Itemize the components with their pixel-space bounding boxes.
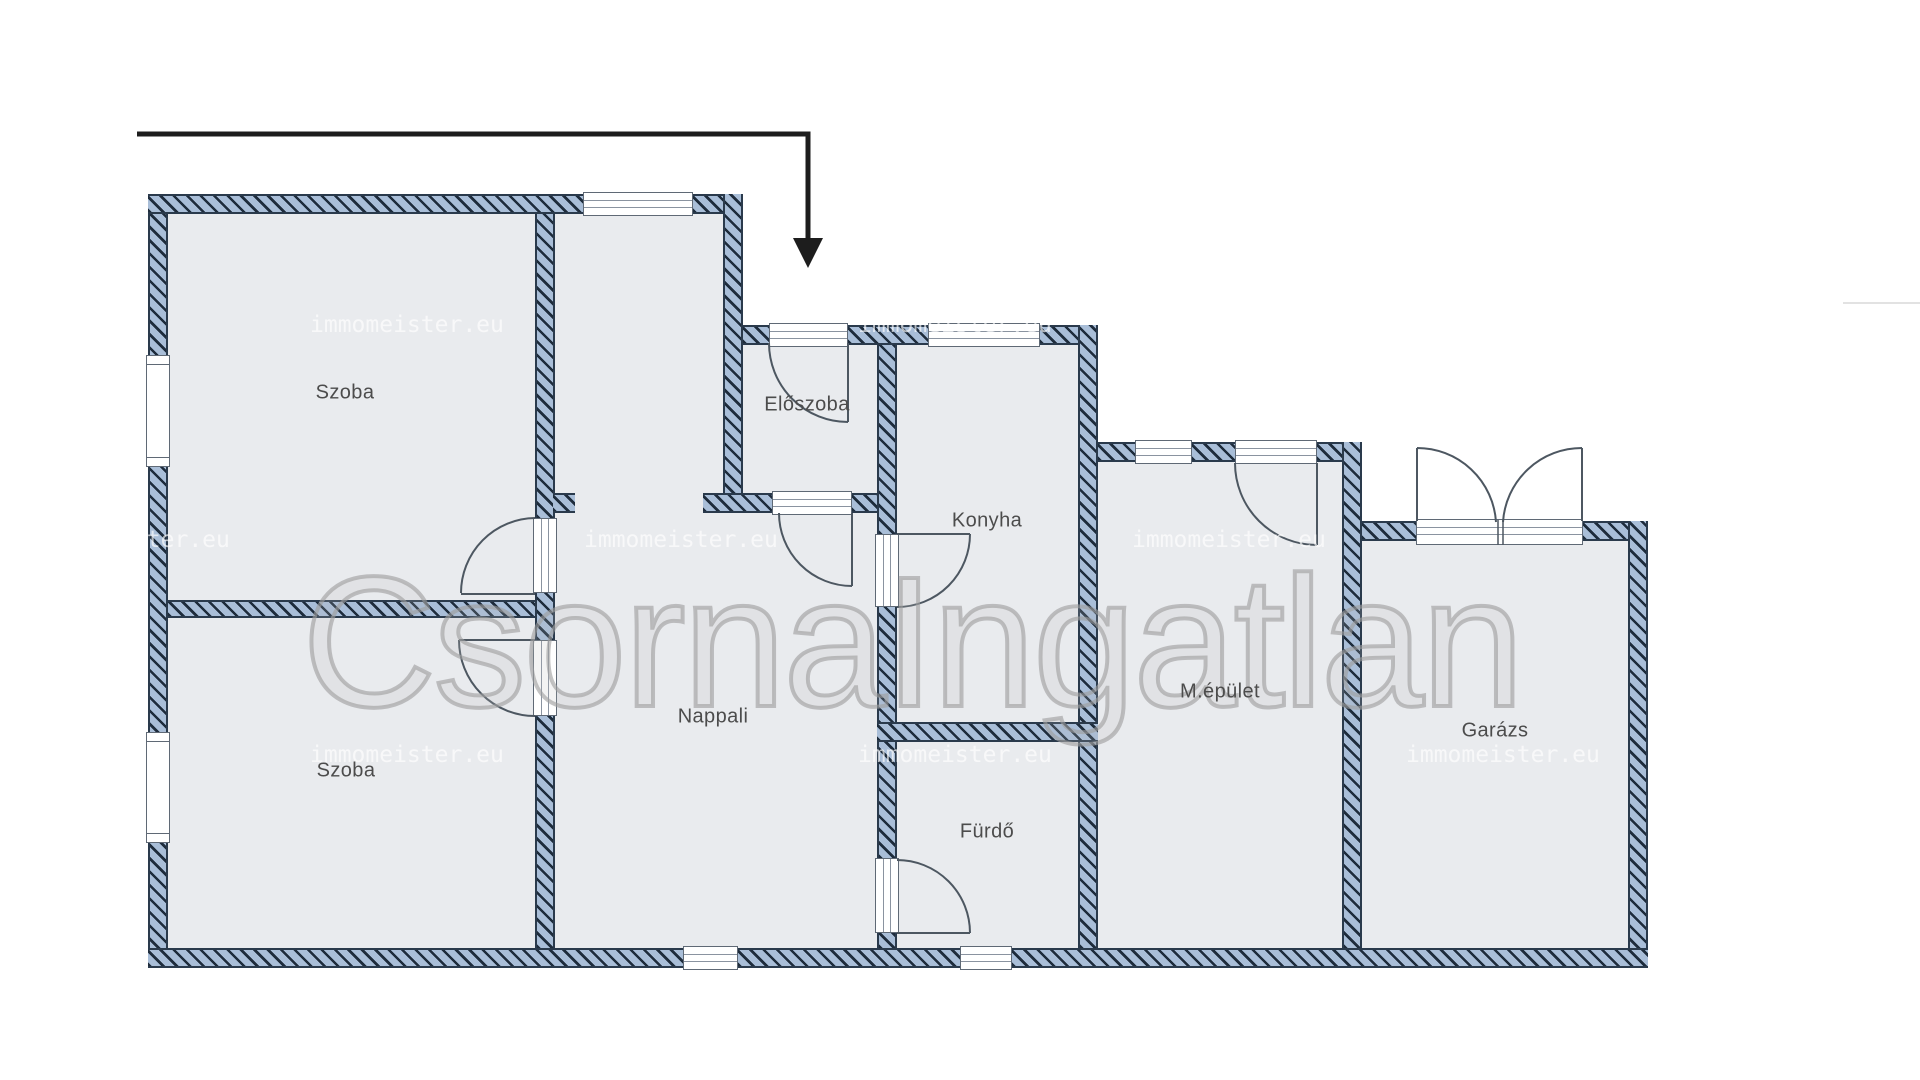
door-arc-garazs-right [1503,448,1582,522]
room-label-garazs: Garázs [1462,720,1529,743]
entrance-arrow [137,134,823,268]
room-label-eloszoba: Előszoba [764,394,849,417]
watermark-small: immomeister.eu [36,526,230,554]
watermark-small: immomeister.eu [310,311,504,339]
room-label-szoba-2: Szoba [317,760,376,783]
entrance-arrow-head [793,238,823,268]
door-arc-garazs-left [1417,448,1496,522]
door-arc-furdo [897,860,970,933]
room-label-konyha: Konyha [952,510,1022,533]
room-label-szoba-1: Szoba [316,382,375,405]
room-label-nappali: Nappali [678,706,749,729]
watermark-big: CsornaIngatlan [302,550,1522,736]
watermark-small: immomeister.eu [858,311,1052,339]
entrance-arrow-line [137,134,808,240]
room-label-mepulet: M.épület [1180,681,1260,704]
room-label-furdo: Fürdő [960,821,1014,844]
floor-plan-canvas: immomeister.eu immomeister.eu immomeiste… [0,0,1920,1080]
